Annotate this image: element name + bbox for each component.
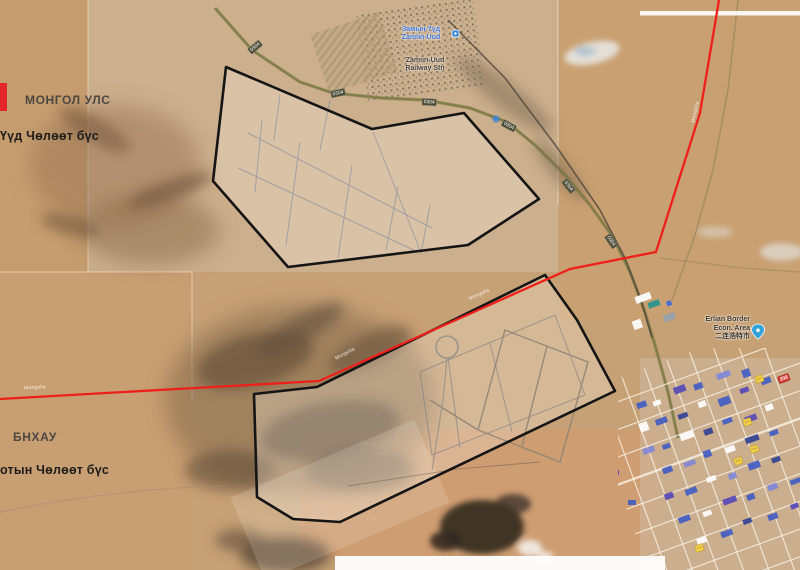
- tile-seam-bottom: [335, 556, 665, 570]
- zamiin-uud-dark-label: Zamiin-Uud Railway Stn: [386, 57, 464, 73]
- zamiin-uud-marker-icon: [452, 30, 459, 37]
- map-figure: МОНГОЛ УЛС Үүд Чөлөөт бүс БНХАУ отын Чөл…: [0, 0, 800, 570]
- zamiin-uud-dark-line2: Railway Stn: [386, 65, 464, 73]
- erenhot-line3: 二连浩特市: [694, 333, 750, 342]
- label-china-zone: отын Чөлөөт бүс: [0, 463, 109, 477]
- plan-annotation: ····: [367, 516, 378, 521]
- label-mongolia: МОНГОЛ УЛС: [25, 93, 111, 107]
- city-building: [628, 500, 636, 505]
- zamiin-uud-dark-line1: Zamiin-Uud: [386, 57, 464, 65]
- erenhot-line1: Erlian Border: [694, 316, 750, 325]
- erenhot-label: Erlian Border Econ. Area 二连浩特市: [694, 316, 750, 342]
- small-blue-poi-icon: [492, 115, 500, 123]
- erenhot-line2: Econ. Area: [694, 325, 750, 334]
- plan-annotation: ····: [367, 442, 378, 447]
- legend-red-swatch: [0, 83, 7, 111]
- zamiin-uud-blue-label: Замын-Үүд Zamiin-Uud: [392, 26, 450, 42]
- road-shield: 0304: [422, 98, 437, 106]
- tile-seam-top: [640, 11, 800, 16]
- zamiin-uud-blue-line2: Zamiin-Uud: [392, 34, 450, 42]
- plan-annotation: ····: [376, 451, 387, 456]
- label-mongolia-zone: Үүд Чөлөөт бүс: [0, 129, 99, 143]
- satellite-map: [0, 0, 800, 570]
- zamiin-uud-blue-line1: Замын-Үүд: [392, 26, 450, 34]
- label-china: БНХАУ: [13, 430, 57, 444]
- border-label: Mongolia: [24, 384, 46, 391]
